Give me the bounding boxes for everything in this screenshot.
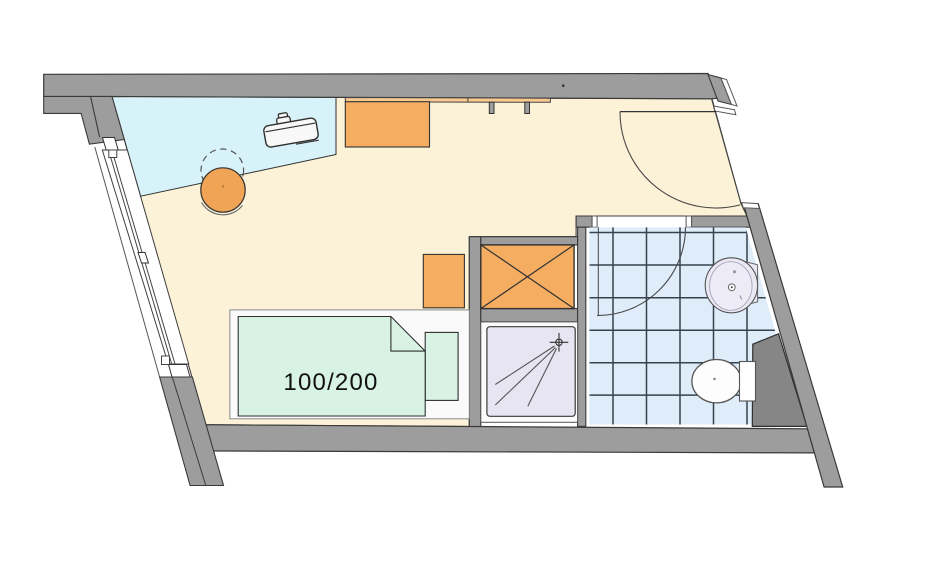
svg-text:100/200: 100/200 <box>283 369 378 396</box>
